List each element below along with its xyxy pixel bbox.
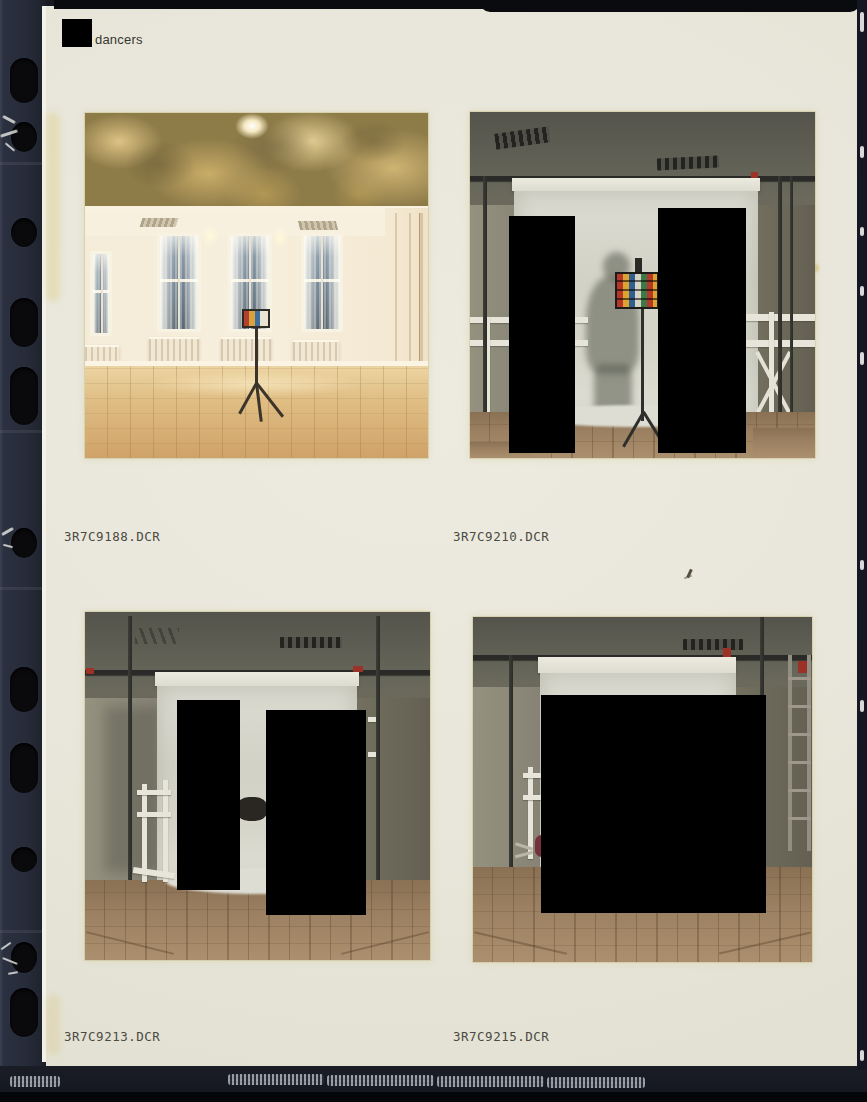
plastic-glint <box>860 560 864 570</box>
barre-frame-post <box>528 767 533 859</box>
window-partial <box>90 251 112 336</box>
scan-bottom-band <box>0 1092 867 1102</box>
binder-hole <box>10 988 38 1037</box>
photo-filename: 3R7C9215.DCR <box>453 1029 549 1044</box>
binder-hole <box>11 847 37 872</box>
ceiling-vent <box>683 639 743 650</box>
color-test-chart-patches <box>244 311 268 326</box>
barre-frame-post <box>163 780 168 882</box>
binder-hole <box>11 942 37 973</box>
page-stain <box>46 112 60 302</box>
sleeve-ribbed-strip <box>437 1076 544 1087</box>
chart-mount <box>635 258 642 272</box>
binder-hole <box>10 743 38 793</box>
dark-object <box>237 797 267 821</box>
sleeve-ribbed-strip <box>327 1075 434 1086</box>
sleeve-seam <box>0 587 46 590</box>
ladder-rung <box>788 761 811 764</box>
photo-print-2 <box>470 112 815 458</box>
ladder-rung <box>788 705 811 708</box>
ceiling-light <box>235 113 269 139</box>
redaction-box <box>177 700 240 890</box>
plastic-glint <box>860 146 864 158</box>
color-test-chart <box>615 272 659 309</box>
photo-filename: 3R7C9188.DCR <box>64 529 160 544</box>
plastic-glint <box>860 286 864 296</box>
wood-floor-right <box>753 428 815 458</box>
tripod-pole <box>255 328 258 385</box>
light-stand-pole <box>778 176 782 444</box>
chart-stand-pole <box>641 309 644 421</box>
sleeve-ribbed-strip <box>10 1076 60 1087</box>
plastic-glint <box>860 12 864 32</box>
binder-hole <box>10 58 38 103</box>
redaction-box <box>541 695 766 913</box>
light-stand-pole <box>376 616 380 902</box>
redaction-box <box>266 710 366 915</box>
binder-hole <box>10 367 38 425</box>
backdrop-roll <box>155 672 359 686</box>
clamp <box>798 661 807 673</box>
color-test-chart-patches <box>617 274 657 307</box>
sleeve-seam <box>0 430 46 433</box>
page-stain <box>46 995 60 1055</box>
scanned-binder-page: dancers <box>0 0 867 1102</box>
wall-panel-line <box>409 213 411 363</box>
right-wall <box>357 698 430 880</box>
lace-curtain <box>93 254 109 333</box>
binder-hole <box>11 218 37 247</box>
window <box>301 233 343 332</box>
wall-light <box>201 225 219 247</box>
ladder-rail <box>807 655 811 851</box>
light-stand-pole <box>790 176 793 444</box>
light-stand-pole <box>483 176 487 444</box>
redaction-box <box>658 208 746 453</box>
lace-curtain <box>160 236 198 329</box>
ladder-rail <box>788 655 792 851</box>
plastic-glint <box>860 1050 864 1061</box>
pole-bracket <box>368 752 376 757</box>
ladder-rung <box>788 789 811 792</box>
sleeve-seam <box>0 930 46 933</box>
binder-hole <box>11 528 37 558</box>
plastic-glint <box>860 352 864 365</box>
wall-light <box>271 227 289 249</box>
pole-bracket <box>368 717 376 722</box>
ladder-rung <box>788 817 811 820</box>
ladder-rung <box>788 733 811 736</box>
light-stand-pole <box>128 616 132 896</box>
lace-curtain <box>304 236 340 329</box>
window <box>157 233 201 332</box>
sleeve-ribbed-strip <box>547 1077 645 1088</box>
redaction-box <box>509 216 575 453</box>
light-stand-pole <box>509 655 513 870</box>
sleeve-seam <box>0 162 46 165</box>
ceiling-vent <box>140 218 179 227</box>
photo-filename: 3R7C9210.DCR <box>453 529 549 544</box>
plastic-glint <box>860 700 864 712</box>
wall-pipe <box>419 213 423 365</box>
sleeve-top-edge <box>480 0 860 12</box>
barre-frame-rail <box>137 812 171 817</box>
photo-print-1 <box>85 113 428 458</box>
ceiling-vent <box>280 637 342 648</box>
binder-hole <box>10 667 38 712</box>
binder-hole <box>10 298 38 347</box>
sleeve-right-edge <box>857 0 867 1070</box>
barre-frame-rail <box>137 790 171 795</box>
page-title: dancers <box>95 32 143 47</box>
binder-hole <box>11 122 37 152</box>
clamp <box>86 668 94 674</box>
backdrop-roll <box>538 657 736 673</box>
ceiling-vent <box>298 221 338 230</box>
wall-panel-line <box>395 213 397 363</box>
plastic-glint <box>860 227 864 236</box>
photo-filename: 3R7C9213.DCR <box>64 1029 160 1044</box>
header-redaction-box <box>62 19 92 47</box>
barre-frame-post <box>142 784 147 882</box>
photo-print-3 <box>85 612 430 960</box>
photo-print-4 <box>473 617 812 962</box>
sleeve-ribbed-strip <box>228 1074 324 1085</box>
ceiling-mark <box>135 628 179 644</box>
color-test-chart <box>242 309 270 328</box>
ladder-rung <box>788 677 811 680</box>
